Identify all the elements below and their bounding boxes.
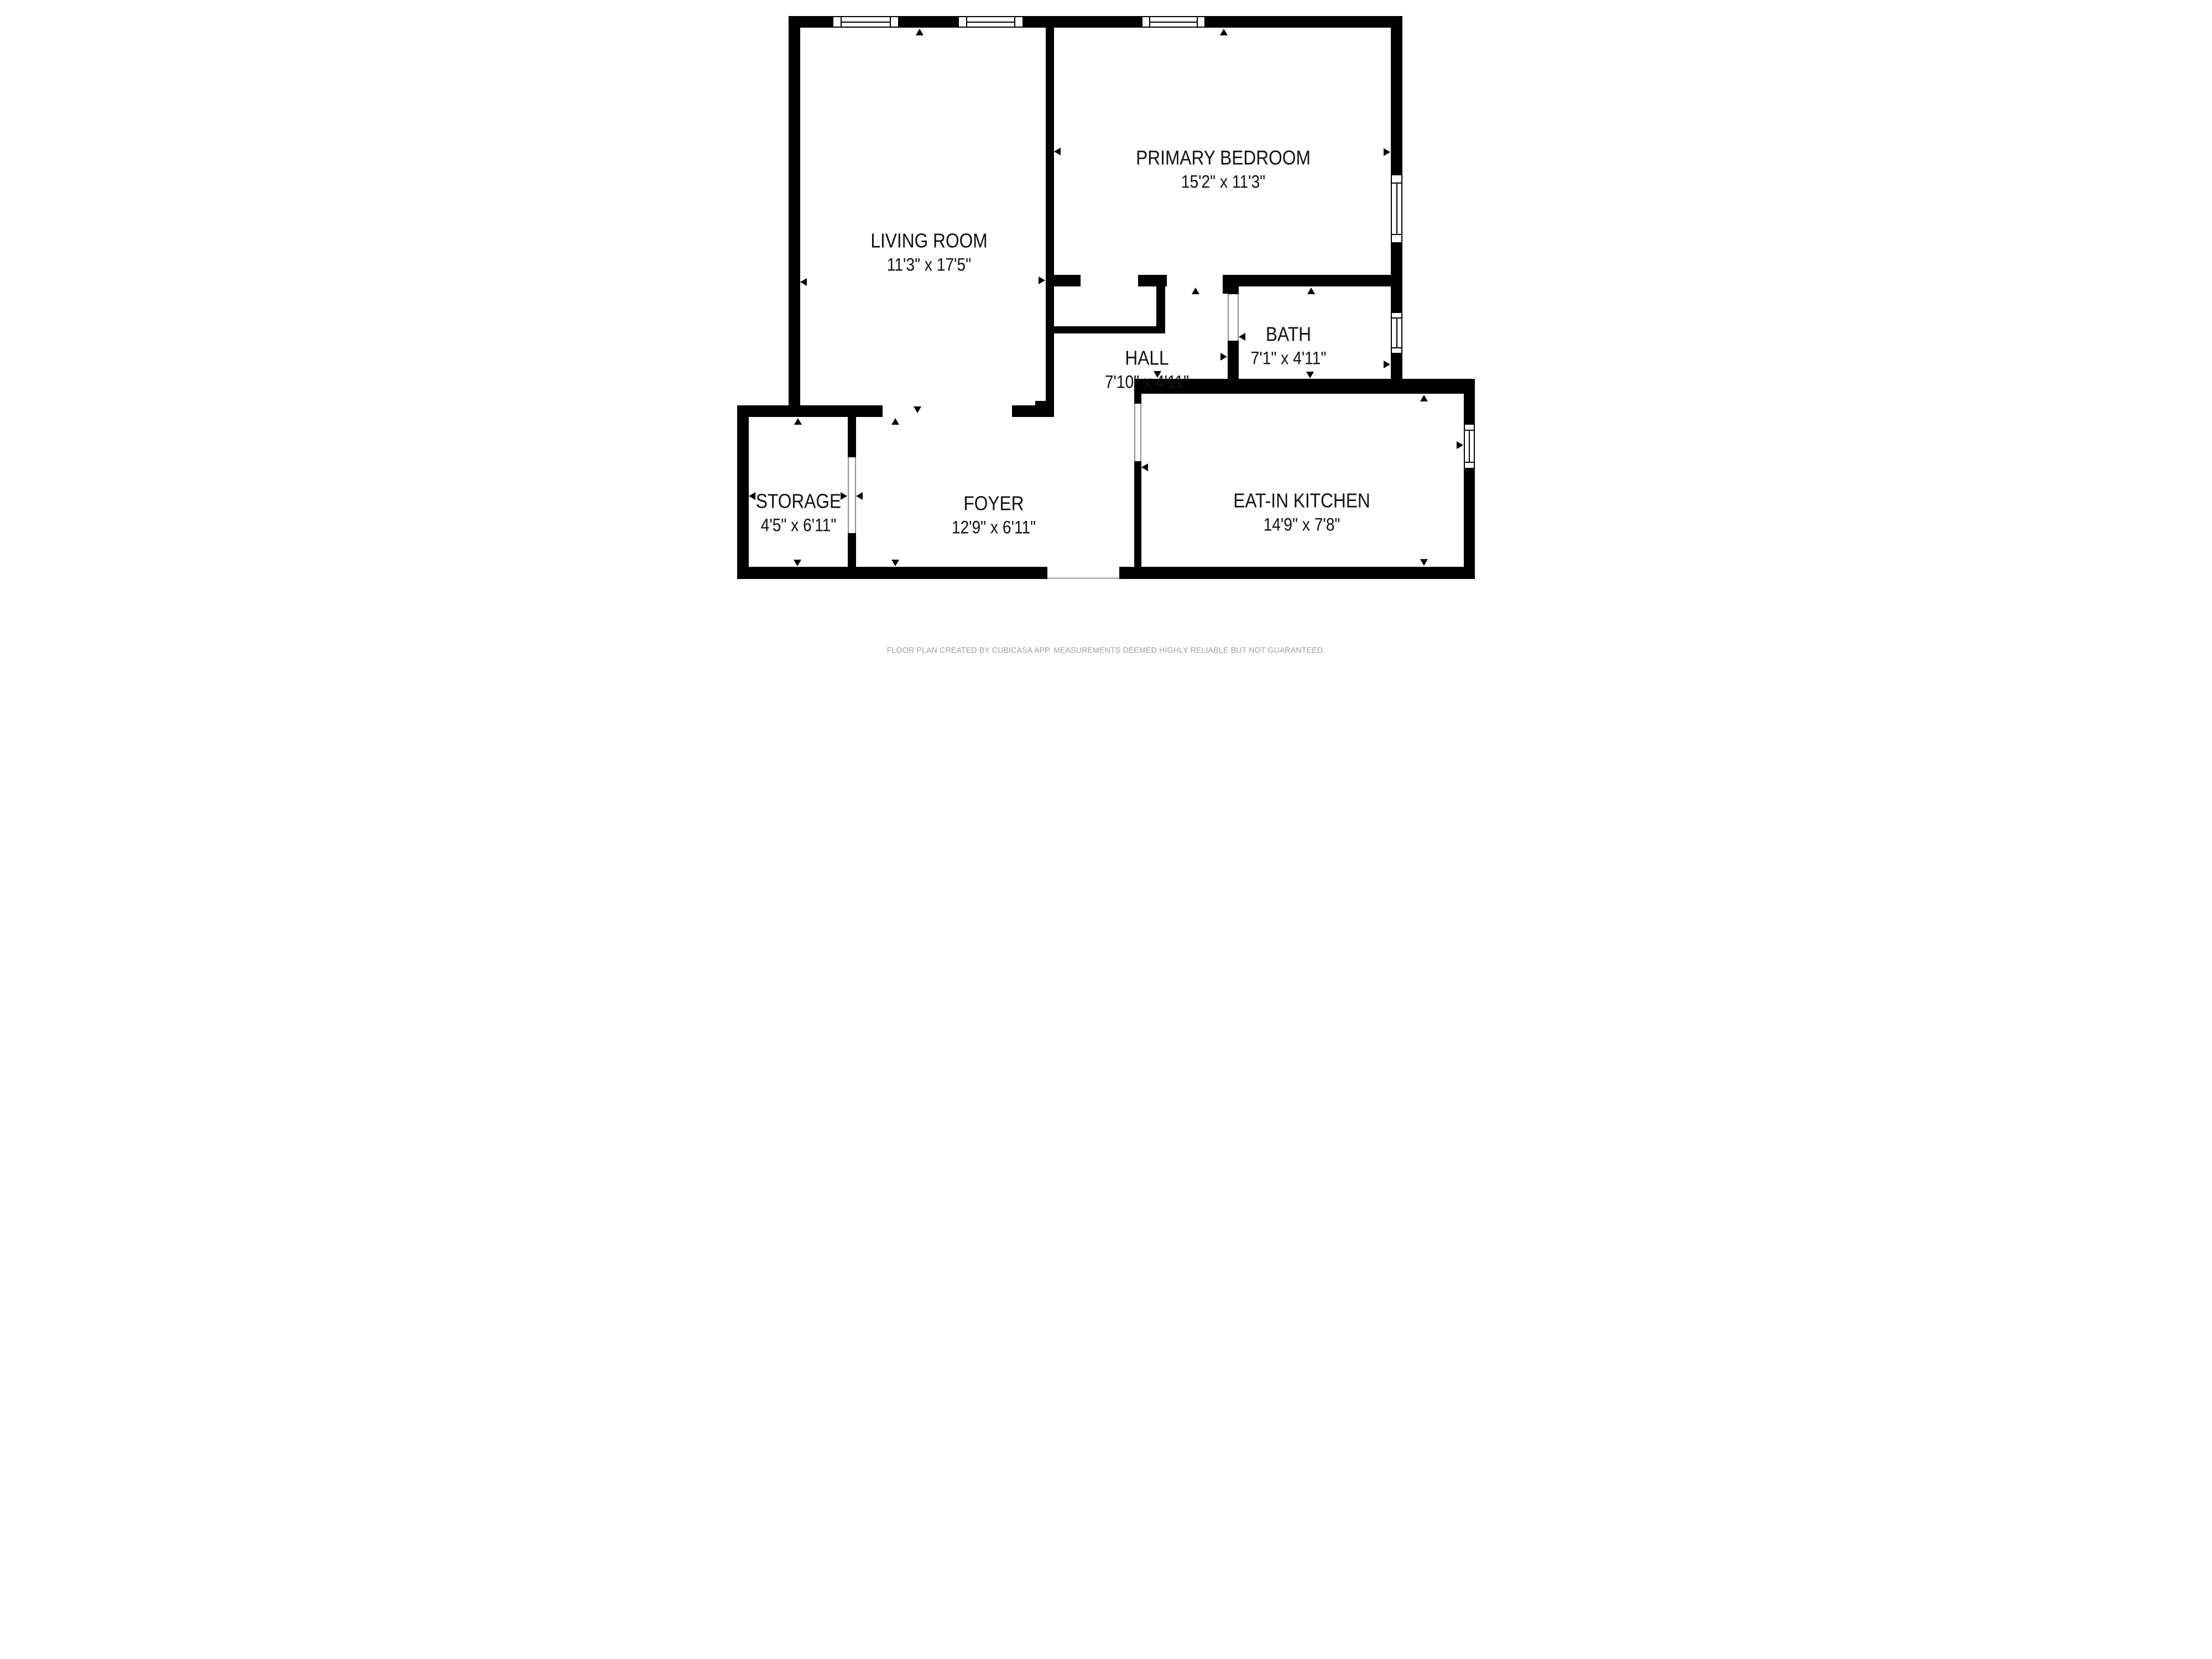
door-arrow-up-icon: [794, 418, 802, 425]
door-arrow-left-icon: [800, 278, 807, 286]
door-storage: [848, 457, 856, 533]
door-arrow-left-icon: [856, 492, 863, 500]
wall-exterior-bottom-right: [1119, 567, 1475, 579]
wall-kitchen-right: [1464, 379, 1475, 579]
window-kitchen-right: [1464, 424, 1475, 469]
door-arrow-right-icon: [1220, 353, 1227, 361]
wall-storage-top: [737, 405, 883, 417]
door-arrow-up-icon: [1220, 29, 1228, 35]
wall-foyer-top-step: [1035, 401, 1054, 417]
door-arrow-up-icon: [1192, 288, 1199, 294]
room-name: EAT-IN KITCHEN: [1233, 491, 1370, 511]
window-living-room-2: [958, 16, 1024, 28]
wall-bath-left-upper: [1228, 286, 1239, 294]
wall-storage-right-lower: [848, 533, 856, 567]
wall-closet-right: [1156, 286, 1165, 326]
room-label-living-room: LIVING ROOM 11'3" x 17'5": [870, 231, 987, 274]
room-name: BATH: [1251, 325, 1327, 345]
footer-disclaimer: FLOOR PLAN CREATED BY CUBICASA APP. MEAS…: [887, 646, 1326, 655]
door-arrow-down-icon: [1420, 559, 1428, 566]
room-name: HALL: [1105, 348, 1189, 368]
wall-bath-top: [1239, 275, 1391, 286]
room-dimensions: 7'10" x 4'11": [1105, 373, 1189, 391]
wall-storage-exterior-left: [737, 405, 749, 579]
room-label-hall: HALL 7'10" x 4'11": [1105, 348, 1189, 391]
wall-living-bedroom-divider: [1046, 28, 1054, 417]
room-dimensions: 11'3" x 17'5": [870, 256, 987, 274]
window-glass-line: [1396, 182, 1397, 234]
door-main-entry: [1047, 567, 1119, 579]
wall-exterior-bottom-left: [737, 567, 1047, 579]
room-name: LIVING ROOM: [870, 231, 987, 251]
door-arrow-left-icon: [1239, 333, 1245, 341]
room-name: PRIMARY BEDROOM: [1136, 148, 1311, 168]
door-arrow-up-icon: [916, 29, 924, 35]
door-arrow-down-icon: [891, 560, 899, 566]
room-dimensions: 7'1" x 4'11": [1251, 349, 1327, 367]
window-glass-line: [1149, 22, 1197, 23]
door-arrow-right-icon: [1384, 148, 1390, 156]
room-name: STORAGE: [756, 492, 841, 512]
door-arrow-up-icon: [1420, 395, 1428, 401]
window-bedroom-top: [1141, 16, 1206, 28]
room-name: FOYER: [952, 494, 1036, 514]
wall-bedroom-bottom-b: [1138, 275, 1167, 286]
door-arrow-left-icon: [1141, 463, 1148, 471]
wall-exterior-left: [789, 28, 800, 417]
room-label-storage: STORAGE 4'5" x 6'11": [756, 492, 841, 534]
window-bedroom-right: [1391, 174, 1402, 243]
window-bath-right: [1391, 312, 1402, 354]
door-arrow-up-icon: [1307, 288, 1315, 294]
door-bath: [1228, 294, 1239, 341]
wall-storage-right-upper: [848, 417, 856, 457]
door-bedroom-hall: [1167, 275, 1223, 286]
door-arrow-down-icon: [1306, 372, 1314, 378]
room-label-bath: BATH 7'1" x 4'11": [1251, 325, 1327, 367]
room-label-primary-bedroom: PRIMARY BEDROOM 15'2" x 11'3": [1136, 148, 1311, 191]
window-glass-line: [841, 22, 891, 23]
wall-bedroom-bottom-a: [1054, 275, 1081, 286]
door-arrow-right-icon: [1457, 441, 1463, 449]
door-arrow-right-icon: [1039, 276, 1045, 284]
opening-living-foyer: [883, 405, 1012, 417]
wall-bath-left-lower: [1228, 341, 1239, 394]
window-glass-line: [1396, 317, 1397, 348]
door-arrow-left-icon: [749, 492, 755, 500]
window-glass-line: [966, 22, 1016, 23]
room-dimensions: 14'9" x 7'8": [1233, 516, 1370, 534]
door-arrow-right-icon: [841, 492, 847, 500]
door-arrow-left-icon: [1054, 148, 1061, 155]
door-arrow-up-icon: [891, 418, 899, 425]
window-living-room-1: [832, 16, 899, 28]
window-glass-line: [1469, 430, 1470, 463]
room-label-foyer: FOYER 12'9" x 6'11": [952, 494, 1036, 536]
door-bedroom-closet: [1081, 275, 1138, 286]
room-dimensions: 12'9" x 6'11": [952, 519, 1036, 536]
door-foyer-kitchen: [1134, 404, 1141, 461]
door-arrow-right-icon: [1384, 361, 1390, 368]
wall-closet-bottom: [1054, 326, 1165, 333]
wall-foyer-right-lower: [1134, 461, 1141, 579]
room-dimensions: 4'5" x 6'11": [756, 517, 841, 534]
room-label-eat-in-kitchen: EAT-IN KITCHEN 14'9" x 7'8": [1233, 491, 1370, 534]
door-arrow-down-icon: [914, 406, 921, 413]
floor-plan-canvas: LIVING ROOM 11'3" x 17'5" PRIMARY BEDROO…: [664, 0, 1548, 664]
room-dimensions: 15'2" x 11'3": [1136, 173, 1311, 191]
door-arrow-down-icon: [794, 560, 801, 566]
